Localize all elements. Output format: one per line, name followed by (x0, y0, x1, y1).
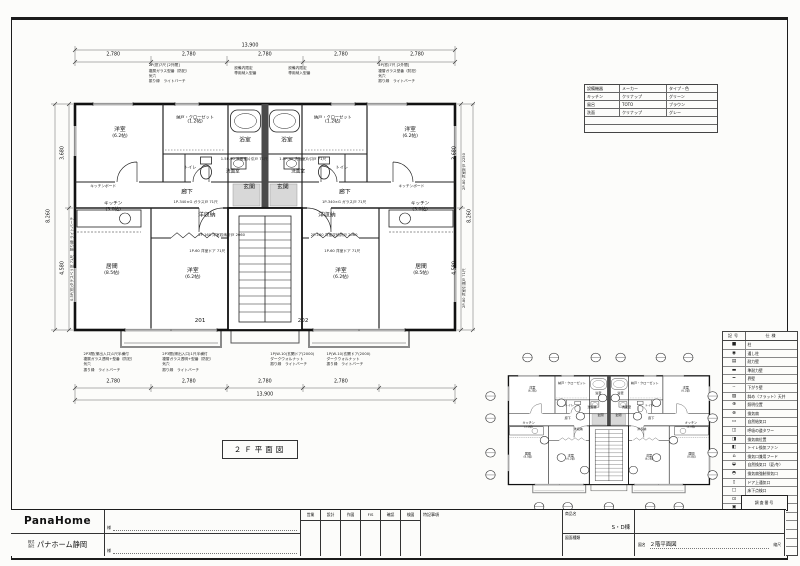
room-name: 浴室 (281, 138, 293, 144)
room-name: 居間 (415, 264, 427, 270)
legend-header-symbol: 記号 (723, 332, 746, 340)
stamp-box (301, 521, 320, 556)
room-label: 洋収納 (318, 212, 335, 219)
stamp-column: 営業 (301, 510, 321, 556)
room-name: トイレ (565, 403, 574, 407)
room-label: 洋室(6.2帖) (645, 454, 654, 461)
kitchen-board-note: キッチンボード (90, 184, 116, 189)
legend-row: ╌下がり壁 (723, 384, 797, 393)
room-name: トイレ (184, 165, 197, 170)
room-size: (6.2帖) (566, 458, 575, 461)
legend-row: ⌂換気口兼用フード (723, 453, 797, 462)
room-label: トイレ (184, 165, 197, 170)
main-floor-plan: 洋室(6.2帖) 納戸・クローゼット(1.2帖) 浴室 浴室 納戸・クローゼット… (25, 42, 475, 412)
dim-label-right-upper: 3,680 (453, 146, 458, 160)
legend-row: ▨斜め（フラット）天井 (723, 393, 797, 402)
stamp-column: 作図 (341, 510, 361, 556)
room-name: 居間 (106, 264, 118, 270)
room-label: 洋室(6.2帖) (681, 386, 690, 393)
client-suffix: 様 (107, 525, 111, 531)
room-label: 居間(8.5帖) (104, 264, 119, 276)
stamp-box (321, 521, 340, 556)
room-name: 納戸・クローゼット (558, 381, 586, 385)
room-label: 洗面室 (622, 407, 631, 411)
room-label: キッチン(3.0帖) (685, 422, 697, 429)
room-size: (8.5帖) (687, 456, 696, 459)
room-name: 洋室 (646, 453, 652, 457)
room-name: 洋収納 (574, 427, 583, 431)
product-value: S・D棟 (612, 523, 630, 531)
product-row: 商品名 S・D棟 (563, 510, 634, 534)
legend-label: 下がり壁 (746, 384, 797, 392)
dim-label-left-total: 8,260 (46, 209, 51, 223)
company-prefix: 株式会社 (28, 541, 35, 548)
legend-row: ⊕照明位置 (723, 401, 797, 410)
equipment-cell: グレー (667, 109, 717, 116)
room-name: キッチン (411, 202, 429, 207)
window-spec-note: 2P3間(掃出入口)1尺半横付 複層ガラス透明+型番（防犯） 気穴 振り縁 ライ… (84, 352, 135, 373)
equipment-cell: グリーン (667, 93, 717, 100)
dim-label-segment: 2,780 (258, 53, 272, 58)
legend-symbol-icon: ▨ (723, 393, 746, 401)
drawing-name-block: 図名 ２階平面図 縮尺 (635, 510, 785, 556)
room-label: 納戸・クローゼット(1.2帖) (314, 115, 352, 126)
dim-label-segment: 2,780 (258, 380, 272, 385)
equipment-table: 設備機器 メーカー タイプ・色 キッチン クリナップ グリーン 風呂 TOTO … (584, 84, 718, 133)
room-label: 洋室(6.2帖) (566, 454, 575, 461)
equipment-cell: TOTO (620, 101, 667, 108)
room-label: 洋室(6.2帖) (528, 386, 537, 393)
room-name: 玄関 (597, 413, 603, 417)
legend-symbol-icon: ◫ (723, 427, 746, 435)
room-name: 洋室 (114, 127, 126, 133)
legend-label: 床下点検口 (746, 487, 797, 495)
room-size: (6.2帖) (185, 275, 200, 281)
room-name: トイレ (645, 403, 654, 407)
stamp-header: 作図 (341, 510, 360, 521)
door-spec-note: 1P-340×G ガラス戸 71尺 (174, 200, 218, 205)
equipment-header-maker: メーカー (620, 85, 667, 92)
stamp-header: FIS (361, 510, 380, 521)
room-name: 廊下 (181, 189, 193, 195)
room-name: 浴室 (239, 138, 251, 144)
stamp-header: 設計 (321, 510, 340, 521)
room-name: 納戸・クローゼット (631, 381, 659, 385)
equipment-cell: 洗面 (585, 109, 620, 116)
survey-number-label: 調査番号 (755, 500, 775, 506)
equipment-cell: クリナップ (620, 93, 667, 100)
stamp-column: 確認 (381, 510, 401, 556)
equipment-header-type: タイプ・色 (667, 85, 717, 92)
room-name: 洗面室 (291, 169, 305, 174)
dim-label-segment: 2,780 (182, 53, 196, 58)
room-label: 洋室(6.2帖) (112, 127, 127, 139)
title-block-spare-cell (785, 510, 786, 556)
room-size: (3.0帖) (685, 426, 697, 429)
dim-label-segment: 2,780 (106, 380, 120, 385)
unit-number-202: 202 (298, 318, 309, 324)
room-name: 洗面室 (587, 406, 596, 410)
legend-row: ◨換気扇位置 (723, 436, 797, 445)
door-spec-note: 1P-60 洋室ドア 71尺 (189, 249, 225, 254)
room-name: キッチン (685, 421, 697, 425)
room-name: キッチン (522, 421, 534, 425)
client-name-blank (113, 515, 297, 530)
room-name: 洋室 (404, 127, 416, 133)
window-spec-note: 0.5P(窓)タテスベリ窓 71尺 振り縁 ライトバーチ (70, 217, 75, 301)
legend-symbol-icon: ◒ (723, 461, 746, 469)
dim-label-segment: 2,780 (106, 53, 120, 58)
window-spec-note: 2P3間(掃出入口)1尺半横付 複層ガラス透明+型番（防犯） 気穴 振り縁 ライ… (162, 352, 213, 373)
stamp-columns: 営業 設計 作図 FIS 確認 検図 (301, 510, 421, 556)
room-label: 洗面室 (587, 407, 596, 411)
title-block: PanaHome 株式会社 パナホーム静岡 様 様 営業 設計 作図 FIS 確… (11, 509, 786, 556)
room-label: 浴室 (617, 392, 623, 396)
room-size: (8.5帖) (413, 271, 428, 277)
client-row: 様 (105, 510, 300, 534)
special-notes-block: 特記事項 (421, 510, 563, 556)
stamp-header: 確認 (381, 510, 400, 521)
room-name: 洗面室 (226, 169, 240, 174)
room-label: 洗面室 (226, 169, 240, 175)
legend-row: ◉通し柱 (723, 350, 797, 359)
room-label: 居間(8.5帖) (524, 452, 533, 459)
stamp-header: 営業 (301, 510, 320, 521)
room-size: (8.5帖) (524, 456, 533, 459)
room-name: 浴室 (617, 391, 623, 395)
client-row: 様 (105, 534, 300, 557)
room-size: (6.2帖) (528, 390, 537, 393)
legend-symbol-icon: ▤ (723, 358, 746, 366)
legend-row: ▯ドア上通気口 (723, 479, 797, 488)
product-label: 商品名 (565, 511, 576, 517)
dim-label-left-lower: 4,580 (60, 261, 65, 275)
door-spec-note: 1.5P-90 洗面室片引戸 71尺 (279, 157, 326, 162)
room-size: (1.2帖) (314, 120, 352, 126)
room-size: (3.0帖) (411, 207, 429, 213)
room-name: 居間 (688, 451, 694, 455)
room-name: 洗面室 (622, 406, 631, 410)
equipment-cell: 風呂 (585, 101, 620, 108)
legend-symbol-icon: □ (723, 487, 746, 495)
entry-door-note: 1P(W-10)玄関ドア(2000) ダークウォルナット 振り縁 ライトバーチ (327, 352, 371, 368)
stamp-box (341, 521, 360, 556)
room-label: 玄関 (243, 185, 255, 192)
legend-label: 換気扇位置 (746, 436, 797, 444)
legend-header: 記号 仕様 (723, 332, 797, 341)
legend-label: 換気扇 (746, 410, 797, 418)
room-name: 洋室 (335, 268, 347, 274)
stamp-column: 設計 (321, 510, 341, 556)
legend-symbol-icon: ▬ (723, 367, 746, 375)
room-label: 納戸・クローゼット (558, 382, 586, 386)
client-block: 様 様 (105, 510, 301, 556)
dim-label-total-bottom: 13,900 (256, 392, 273, 397)
room-name: キッチン (104, 202, 122, 207)
legend-symbol-icon: ╌ (723, 384, 746, 392)
room-label: 玄関 (615, 414, 621, 418)
legend-symbol-icon: ⌂ (723, 453, 746, 461)
door-spec-note: 1P-340×G ガラス戸 71尺 (322, 200, 366, 205)
drawing-name-value: ２階平面図 (650, 540, 770, 549)
scale-label: 縮尺 (773, 542, 781, 548)
room-label: 洋収納 (574, 428, 583, 432)
room-size: (6.2帖) (112, 134, 127, 140)
room-name: 洋室 (568, 453, 574, 457)
legend-label: トイレ換気ファン (746, 444, 797, 452)
equipment-row-empty (585, 117, 717, 125)
dim-label-segment: 2,780 (334, 380, 348, 385)
room-label: 洋室(6.2帖) (333, 268, 348, 280)
equipment-cell: クリナップ (620, 109, 667, 116)
dim-label-left-upper: 3,680 (60, 146, 65, 160)
legend-label: 自然換気口（夏/冬） (746, 461, 797, 469)
room-label: 洗面室 (291, 169, 305, 175)
legend-label: 自然給気口 (746, 418, 797, 426)
legend-row: ━界壁 (723, 375, 797, 384)
stamp-box (401, 521, 420, 556)
equipment-note: 設備内限定 専用納入型番 (288, 66, 310, 76)
room-name: 洋室 (683, 385, 689, 389)
panahome-logo: PanaHome (11, 510, 104, 534)
legend-label: 呼吸の道タワー (746, 427, 797, 435)
door-spec-note: 2P-160 洋室収納折戸 2060 (311, 233, 358, 238)
room-size: (8.5帖) (104, 271, 119, 277)
room-label: 玄関 (277, 185, 289, 192)
legend-label: 換気扇強制排気口 (746, 470, 797, 478)
room-label: 廊下 (181, 189, 193, 196)
plan-caption: ２Ｆ平面図 (222, 440, 298, 459)
room-name: 浴室 (595, 391, 601, 395)
room-label: キッチン(3.0帖) (411, 202, 429, 213)
drawing-name-row: 図名 ２階平面図 縮尺 (635, 534, 784, 557)
legend-symbol-icon: ━ (723, 375, 746, 383)
room-size: (3.0帖) (104, 207, 122, 213)
room-label: 居間(8.5帖) (413, 264, 428, 276)
room-label: 洋収納 (637, 428, 646, 432)
room-name: 洋収納 (637, 427, 646, 431)
legend-symbol-icon: ⊕ (723, 401, 746, 409)
room-label: 浴室 (595, 392, 601, 396)
legend-row: ◫呼吸の道タワー (723, 427, 797, 436)
drawing-sheet: 洋室(6.2帖) 納戸・クローゼット(1.2帖) 浴室 浴室 納戸・クローゼット… (0, 0, 800, 566)
dim-label-right-lower: 4,580 (453, 261, 458, 275)
product-block: 商品名 S・D棟 図面種類 (563, 510, 635, 556)
legend-row: ▬準耐力壁 (723, 367, 797, 376)
small-floor-plan-drawing (482, 346, 720, 524)
door-spec-note: 2P-160 洋室収納折戸 2060 (198, 233, 245, 238)
stamp-box (361, 521, 380, 556)
room-label: 洋収納 (198, 212, 215, 219)
equipment-row-empty (585, 125, 717, 132)
room-label: トイレ (336, 165, 349, 170)
room-label: 浴室 (239, 138, 251, 145)
legend-label: ドア上通気口 (746, 479, 797, 487)
room-label: 廊下 (339, 189, 351, 196)
client-suffix: 様 (107, 548, 111, 554)
legend-symbol-icon: ◧ (723, 444, 746, 452)
legend-label: 斜め（フラット）天井 (746, 393, 797, 401)
room-label: キッチン(3.0帖) (104, 202, 122, 213)
equipment-row: キッチン クリナップ グリーン (585, 93, 717, 101)
dim-label-right-total: 8,260 (467, 209, 472, 223)
room-label: 居間(8.5帖) (687, 452, 696, 459)
legend-row: ⊗換気扇 (723, 410, 797, 419)
company-name-text: パナホーム静岡 (37, 540, 87, 550)
legend-header-spec: 仕様 (746, 332, 797, 340)
room-label: 納戸・クローゼット (631, 382, 659, 386)
legend-row: ▤耐力壁 (723, 358, 797, 367)
equipment-cell: キッチン (585, 93, 620, 100)
room-name: 洋室 (529, 385, 535, 389)
door-spec-note: 1P-60 洋室ドア 71尺 (324, 249, 360, 254)
stamp-header: 検図 (401, 510, 420, 521)
room-label: 廊下 (648, 417, 654, 421)
door-spec-note: 1.5P-90 洗面室片引戸 71尺 (221, 157, 268, 162)
room-size: (6.2帖) (402, 134, 417, 140)
legend-symbol-icon: ▭ (723, 418, 746, 426)
legend-label: 通し柱 (746, 350, 797, 358)
room-name: 洋収納 (318, 212, 335, 218)
room-size: (6.2帖) (681, 390, 690, 393)
equipment-cell: ブラウン (667, 101, 717, 108)
window-spec-note: 2P(窓)7尺 [2外間] 複層ガラス型番（防犯） 気穴 振り縁 ライトバーチ (378, 63, 419, 84)
window-spec-note: 2P(窓)7尺 [2外間] 複層ガラス型番（防犯） 気穴 振り縁 ライトバーチ (149, 63, 190, 84)
room-label: トイレ (645, 404, 654, 408)
room-label: 浴室 (281, 138, 293, 145)
door-spec-note: 2P-80 洋室折戸 2250 (462, 153, 467, 190)
unit-number-201: 201 (195, 318, 206, 324)
legend-label: 換気口兼用フード (746, 453, 797, 461)
plan-caption-text: ２Ｆ平面図 (234, 444, 287, 455)
legend-label: 耐力壁 (746, 358, 797, 366)
room-label: 廊下 (565, 417, 571, 421)
special-notes-label: 特記事項 (423, 512, 439, 517)
room-name: 洋室 (187, 268, 199, 274)
room-size: (6.2帖) (333, 275, 348, 281)
drawing-type-row: 図面種類 (563, 534, 634, 557)
drawing-type-label: 図面種類 (565, 535, 580, 541)
room-label: 納戸・クローゼット(1.2帖) (176, 115, 214, 126)
company-block: PanaHome 株式会社 パナホーム静岡 (11, 510, 105, 556)
room-size: (6.2帖) (645, 458, 654, 461)
small-floor-plan: 洋室(6.2帖) 納戸・クローゼット 浴室 浴室 納戸・クローゼット 洋室(6.… (482, 346, 720, 524)
room-name: 玄関 (277, 185, 289, 191)
company-name: 株式会社 パナホーム静岡 (11, 534, 104, 557)
legend-label: 準耐力壁 (746, 367, 797, 375)
equipment-table-header: 設備機器 メーカー タイプ・色 (585, 85, 717, 93)
room-name: 玄関 (243, 185, 255, 191)
dim-label-segment: 2,780 (410, 53, 424, 58)
room-name: 玄関 (615, 413, 621, 417)
room-label: トイレ (565, 404, 574, 408)
room-size: (1.2帖) (176, 120, 214, 126)
room-label: 洋室(6.2帖) (402, 127, 417, 139)
door-spec-note: 2P-80 洋室引違戸 71尺 (462, 269, 467, 309)
client-name-blank (113, 539, 297, 554)
legend-row: ◒自然換気口（夏/冬） (723, 461, 797, 470)
stamp-column: 検図 (401, 510, 421, 556)
equipment-header-item: 設備機器 (585, 85, 620, 92)
room-label: 玄関 (597, 414, 603, 418)
legend-label: 照明位置 (746, 401, 797, 409)
legend-row: ◧トイレ換気ファン (723, 444, 797, 453)
equipment-note: 設備内限定 専用納入型番 (234, 66, 256, 76)
equipment-row: 洗面 クリナップ グレー (585, 109, 717, 117)
room-label: 洋室(6.2帖) (185, 268, 200, 280)
room-name: 廊下 (648, 416, 654, 420)
dim-label-segment: 2,780 (334, 53, 348, 58)
room-label: キッチン(3.0帖) (522, 422, 534, 429)
entry-door-note: 1P(W-10)玄関ドア(2000) ダークウォルナット 振り縁 ライトバーチ (270, 352, 314, 368)
stamp-box (381, 521, 400, 556)
legend-symbol-icon: ⊗ (723, 410, 746, 418)
legend-symbol-icon: ◓ (723, 470, 746, 478)
equipment-row: 風呂 TOTO ブラウン (585, 101, 717, 109)
room-name: 廊下 (565, 416, 571, 420)
room-name: 洋収納 (198, 212, 215, 218)
room-name: 居間 (525, 451, 531, 455)
drawing-name-empty-row (635, 510, 784, 534)
room-size: (3.0帖) (522, 426, 534, 429)
legend-symbol-icon: ◨ (723, 436, 746, 444)
legend-symbol-icon: ◉ (723, 350, 746, 358)
legend-symbol-icon: ▯ (723, 479, 746, 487)
dim-label-segment: 2,780 (182, 380, 196, 385)
legend-row: ◓換気扇強制排気口 (723, 470, 797, 479)
drawing-name-label: 図名 (638, 542, 646, 548)
dim-label-total-top: 13,900 (242, 43, 259, 48)
legend-symbol-icon: ■ (723, 341, 746, 349)
room-name: トイレ (336, 165, 349, 170)
kitchen-board-note: キッチンボード (399, 184, 425, 189)
stamp-column: FIS (361, 510, 381, 556)
room-name: 廊下 (339, 189, 351, 195)
legend-row: ■柱 (723, 341, 797, 350)
legend-row: ▭自然給気口 (723, 418, 797, 427)
legend-label: 柱 (746, 341, 797, 349)
legend-label: 界壁 (746, 375, 797, 383)
